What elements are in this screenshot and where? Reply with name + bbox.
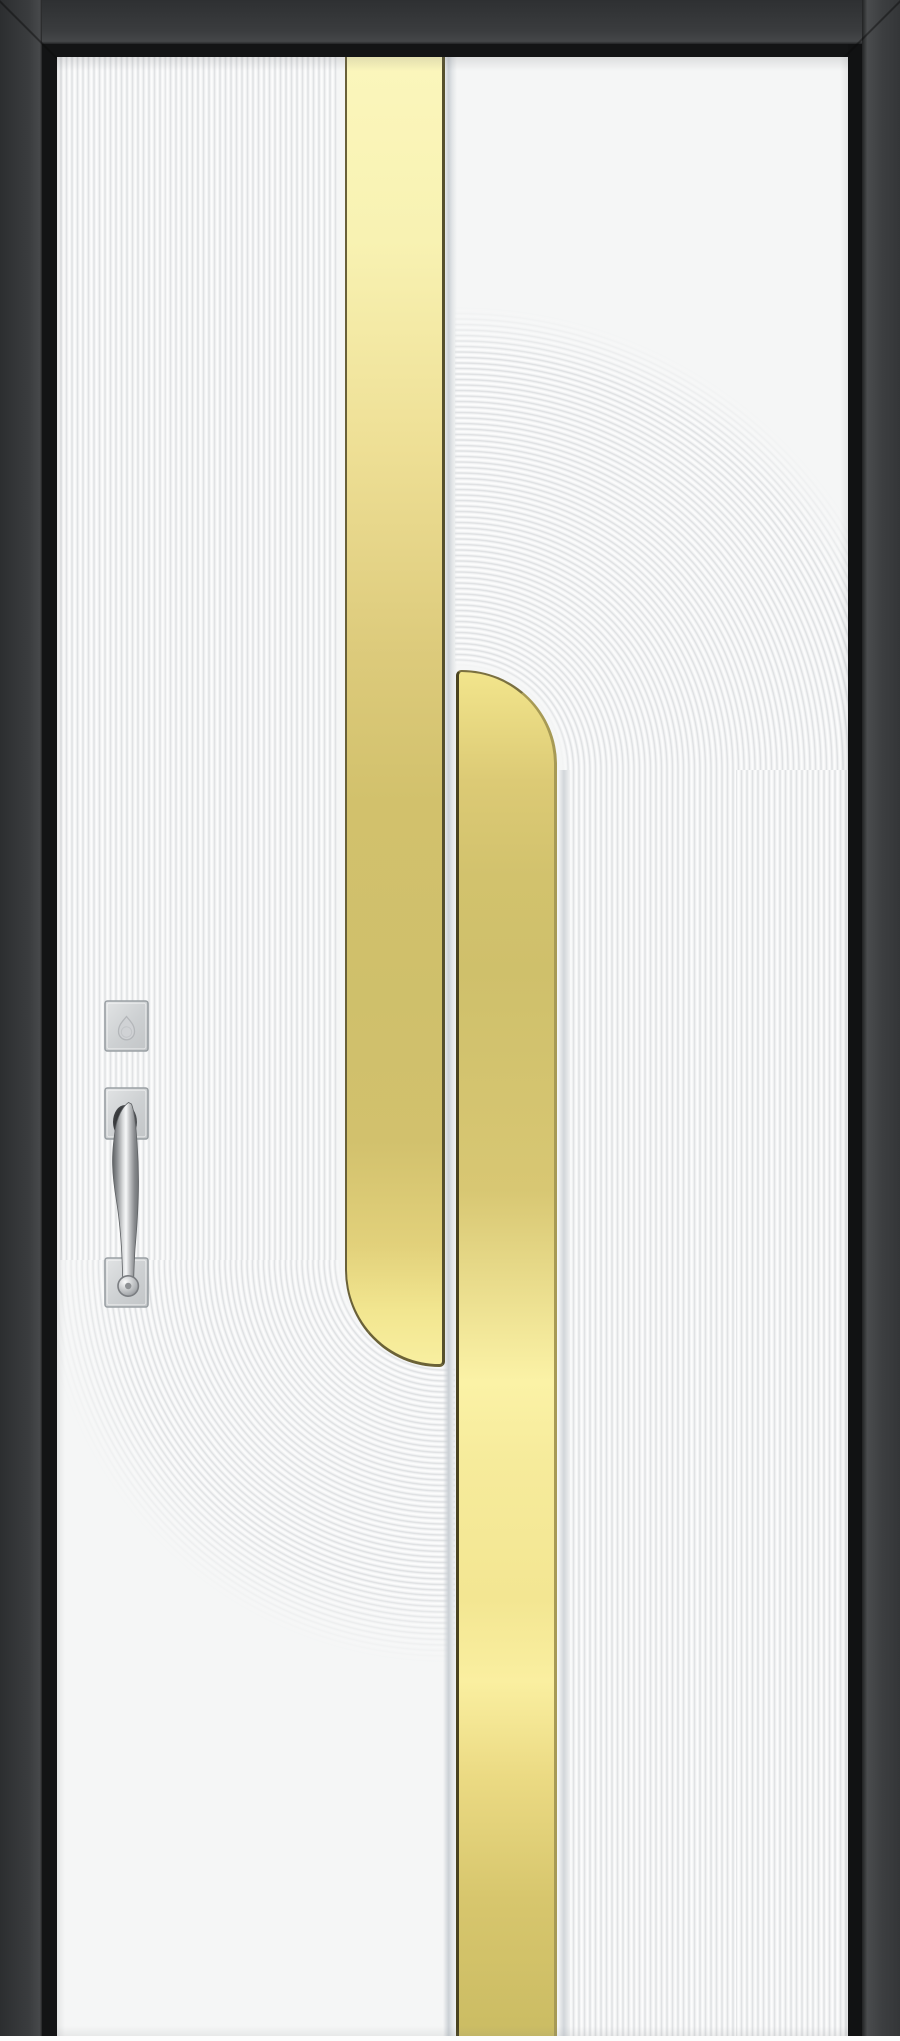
gold-inlay-left-bar (345, 57, 445, 1367)
panel-joint-groove-center (443, 57, 457, 2036)
door-leaf (57, 57, 848, 2036)
door-top-shadow (57, 57, 848, 71)
door-frame-left (0, 0, 42, 2041)
frame-inner-band-top (42, 44, 858, 57)
door-right-shadow (840, 57, 848, 2036)
deadbolt-escutcheon (105, 1001, 148, 1051)
frame-inner-band-right (848, 44, 862, 2041)
fluted-panel-right (570, 770, 848, 2036)
door-bottom-shadow (57, 2026, 848, 2036)
fluted-panel-left (57, 57, 337, 1260)
pull-handle (105, 1088, 148, 1307)
photo-bottom-edge (0, 2036, 900, 2041)
door-frame-right (862, 0, 900, 2041)
door-hardware (100, 985, 155, 1315)
gold-inlay-right-bar (456, 670, 557, 2036)
frame-inner-band-left (42, 44, 57, 2041)
door-left-shadow (57, 57, 65, 2036)
panel-joint-groove-right (558, 770, 571, 2036)
door-frame-top (0, 0, 900, 44)
handle-grip (113, 1103, 139, 1284)
door-product-photo (0, 0, 900, 2041)
